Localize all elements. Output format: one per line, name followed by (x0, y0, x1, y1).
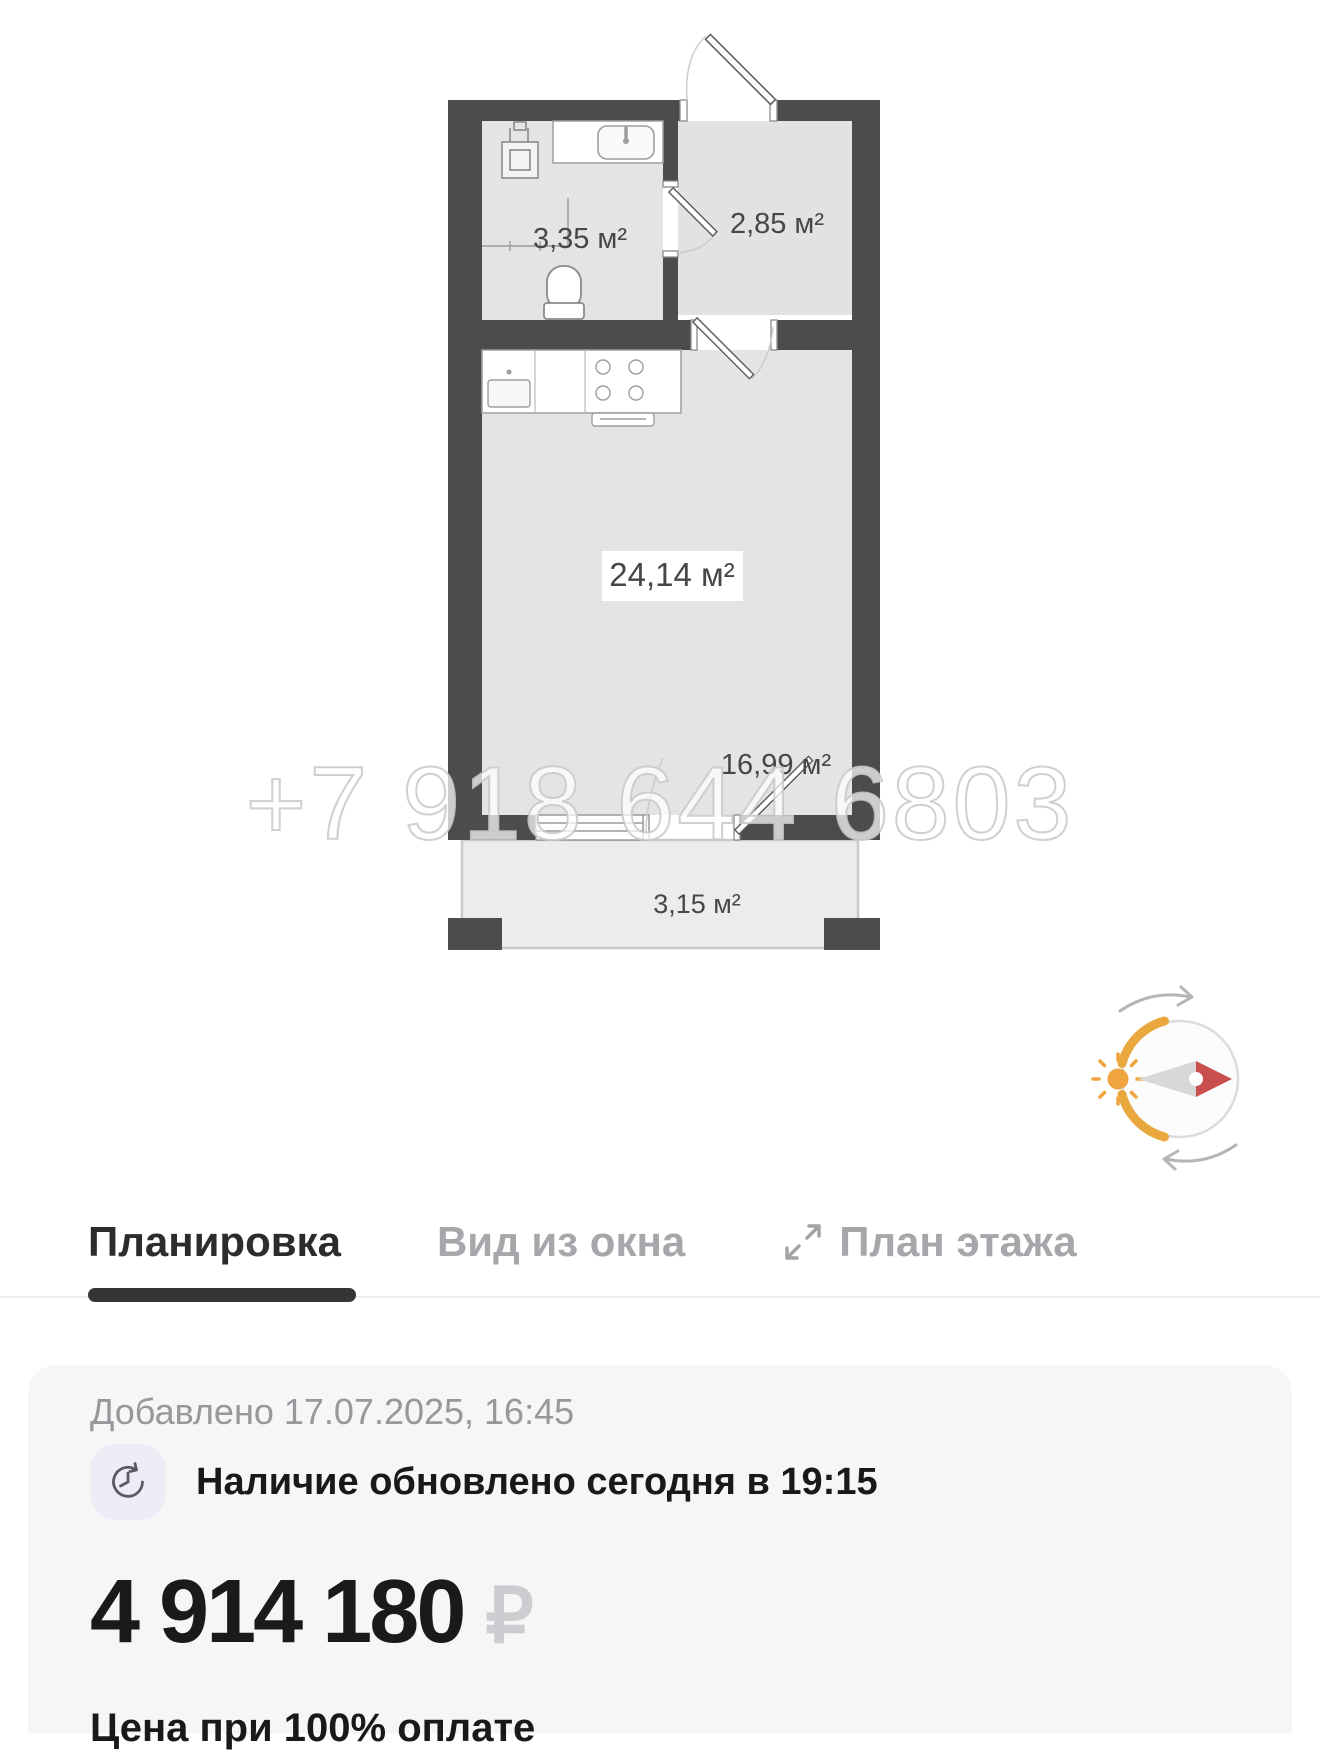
availability-text: Наличие обновлено сегодня в 19:15 (196, 1461, 878, 1504)
tab-window-view[interactable]: Вид из окна (437, 1218, 685, 1266)
entrance-door (687, 34, 776, 104)
area-label-bathroom: 3,35 м² (533, 223, 627, 255)
compass-icon (1090, 985, 1265, 1180)
refresh-clock-icon (106, 1460, 150, 1504)
listing-screen: 3,35 м² 2,85 м² 24,14 м² 16,99 м² 3,15 м… (0, 0, 1320, 1734)
kitchen-sink-icon (488, 380, 530, 407)
balcony-window (536, 815, 643, 840)
area-label-main-room: 24,14 м² (609, 556, 734, 593)
tab-floor-plan[interactable]: План этажа (781, 1218, 1076, 1266)
price-value: 4 914 180 (90, 1570, 463, 1656)
area-label-hallway: 2,85 м² (730, 208, 824, 240)
media-tabbar: Планировка Вид из окна План этажа (0, 1206, 1320, 1302)
toilet-icon (544, 266, 584, 319)
price-row: 4 914 180 ₽ (90, 1570, 1292, 1660)
active-tab-indicator (88, 1288, 356, 1302)
compass-widget (1090, 985, 1265, 1180)
price-note: Цена при 100% оплате (90, 1706, 1292, 1751)
sun-icon (1093, 1054, 1143, 1104)
bathroom-sink-icon (553, 121, 663, 163)
availability-row: Наличие обновлено сегодня в 19:15 (90, 1444, 1292, 1520)
tab-floor-plan-label: План этажа (839, 1218, 1076, 1266)
area-label-balcony: 3,15 м² (653, 889, 741, 919)
floor-plan-image[interactable]: 3,35 м² 2,85 м² 24,14 м² 16,99 м² 3,15 м… (440, 20, 890, 960)
floor-plan-svg: 3,35 м² 2,85 м² 24,14 м² 16,99 м² 3,15 м… (440, 20, 890, 960)
clock-badge (90, 1444, 166, 1520)
expand-icon (781, 1220, 825, 1264)
area-label-living-zone: 16,99 м² (721, 749, 832, 781)
ruble-sign: ₽ (485, 1571, 533, 1660)
offer-details-card: Добавлено 17.07.2025, 16:45 Наличие обно… (28, 1365, 1292, 1734)
added-date-text: Добавлено 17.07.2025, 16:45 (90, 1391, 1292, 1432)
tab-layout[interactable]: Планировка (88, 1218, 341, 1266)
